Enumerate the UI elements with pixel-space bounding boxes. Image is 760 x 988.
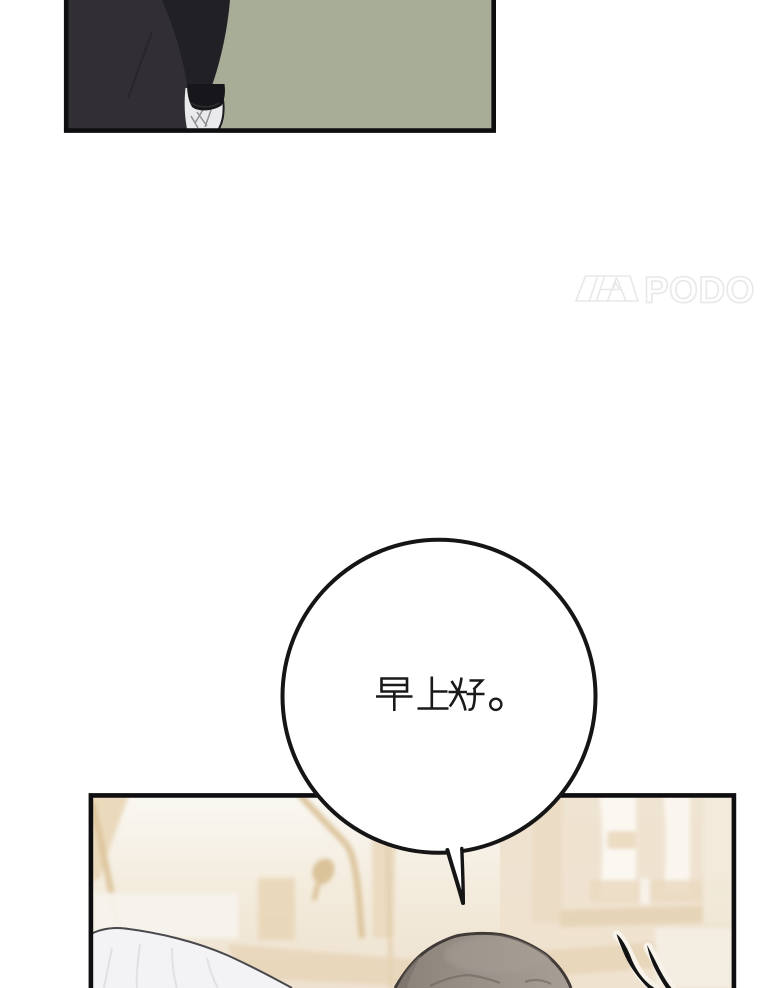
svg-text:PODO: PODO (644, 270, 755, 311)
